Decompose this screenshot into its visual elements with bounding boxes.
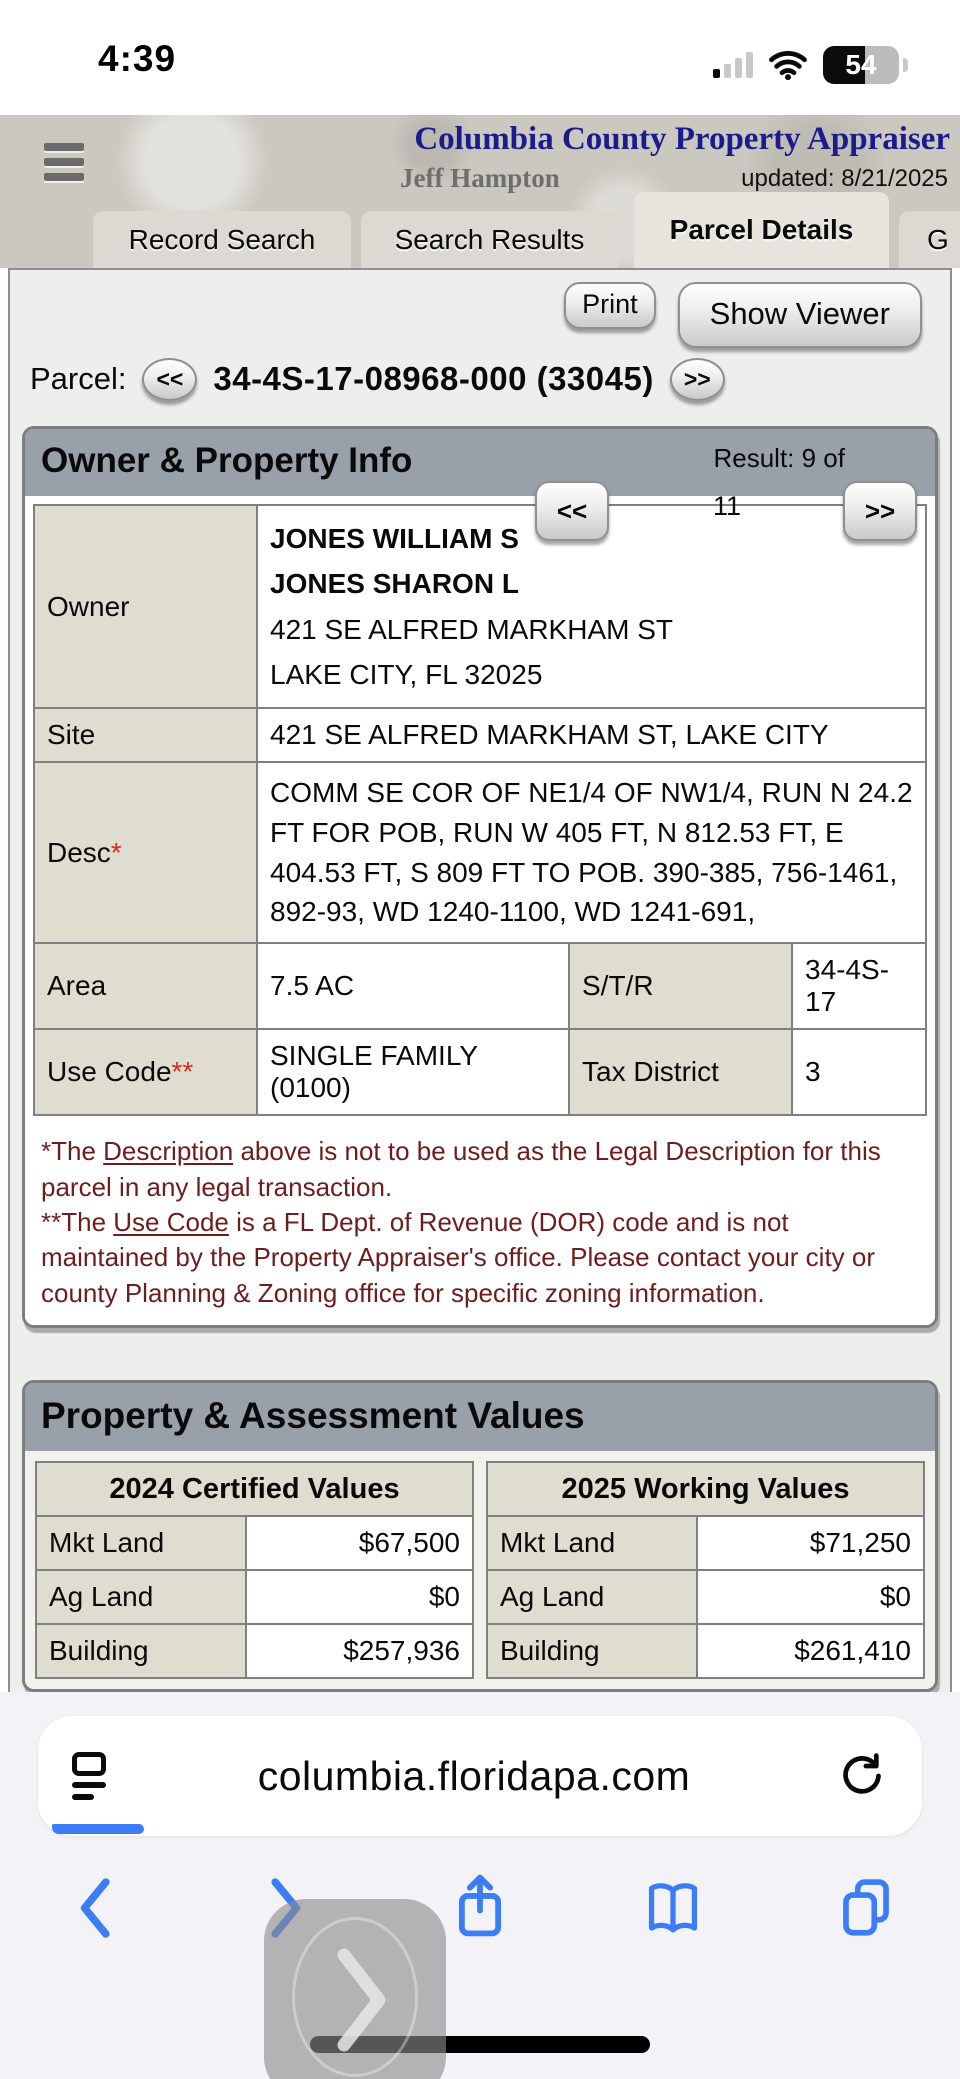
row-label: Ag Land [487, 1570, 697, 1624]
print-button[interactable]: Print [564, 282, 656, 329]
table-row: Site 421 SE ALFRED MARKHAM ST, LAKE CITY [34, 708, 926, 762]
desc-label: Desc* [34, 762, 257, 943]
table-row: 2025 Working Values [487, 1462, 924, 1516]
tab-search-results[interactable]: Search Results [361, 211, 618, 268]
battery-icon: 54 [823, 46, 899, 84]
parcel-label: Parcel: [30, 361, 126, 397]
wifi-icon [769, 50, 807, 80]
values-panel-title: Property & Assessment Values [41, 1393, 919, 1439]
prev-result-button[interactable]: << [535, 481, 609, 541]
assessment-values-panel: Property & Assessment Values 2024 Certif… [22, 1380, 938, 1692]
row-label: Mkt Land [36, 1516, 246, 1570]
result-count: 11 [713, 491, 741, 522]
owner-line: LAKE CITY, FL 32025 [270, 652, 913, 697]
row-value: $261,410 [697, 1624, 924, 1678]
parcel-nav: Parcel: << 34-4S-17-08968-000 (33045) >> [10, 348, 950, 410]
parcel-number: 34-4S-17-08968-000 (33045) [213, 360, 653, 398]
values-table-2025: 2025 Working Values Mkt Land $71,250 Ag … [486, 1461, 925, 1679]
battery-nub [903, 58, 908, 72]
iphone-screen: 4:39 54 Columbia County Property Apprais… [0, 0, 960, 2079]
owner-line: JONES SHARON L [270, 561, 913, 606]
site-header: Columbia County Property Appraiser Jeff … [0, 115, 960, 268]
page-settings-icon[interactable] [72, 1752, 112, 1800]
share-button[interactable] [444, 1868, 516, 1948]
show-viewer-button[interactable]: Show Viewer [678, 282, 922, 348]
legal-footnotes: *The Description above is not to be used… [25, 1124, 935, 1325]
desc-asterisk: * [111, 837, 122, 868]
next-result-button[interactable]: >> [843, 481, 917, 541]
row-value: $0 [246, 1570, 473, 1624]
row-label: Building [487, 1624, 697, 1678]
description-underline: Description [103, 1136, 233, 1166]
battery-percent: 54 [845, 49, 876, 81]
values-panel-header: Property & Assessment Values [25, 1383, 935, 1451]
appraiser-name: Jeff Hampton [400, 163, 560, 194]
owner-info-table: Owner JONES WILLIAM S JONES SHARON L 421… [33, 504, 927, 1116]
desc-value: COMM SE COR OF NE1/4 OF NW1/4, RUN N 24.… [257, 762, 926, 943]
table-row: Area 7.5 AC S/T/R 34-4S-17 [34, 943, 926, 1029]
owner-panel-title: Owner & Property Info [41, 439, 481, 484]
usecode-value: SINGLE FAMILY (0100) [257, 1029, 569, 1115]
usecode-asterisks: ** [172, 1056, 194, 1087]
table-row: Owner JONES WILLIAM S JONES SHARON L 421… [34, 505, 926, 708]
tab-parcel-details[interactable]: Parcel Details [634, 192, 889, 268]
table-row: Building $261,410 [487, 1624, 924, 1678]
table-row: Building $257,936 [36, 1624, 473, 1678]
owner-property-panel: Owner & Property Info Result: 9 of << 11… [22, 426, 938, 1328]
result-label: Result: 9 of [713, 443, 845, 474]
site-title: Columbia County Property Appraiser [414, 121, 950, 158]
tab-gis-cutoff[interactable]: G [899, 211, 960, 268]
assistive-touch-overlay[interactable] [264, 1899, 446, 2079]
str-value: 34-4S-17 [792, 943, 926, 1029]
prev-parcel-button[interactable]: << [142, 358, 197, 401]
values-table-2024: 2024 Certified Values Mkt Land $67,500 A… [35, 1461, 474, 1679]
taxdistrict-label: Tax District [569, 1029, 792, 1115]
values-2025-header: 2025 Working Values [487, 1462, 924, 1516]
safari-toolbar [0, 1868, 960, 1948]
table-row: Ag Land $0 [487, 1570, 924, 1624]
page-content: Print Show Viewer Parcel: << 34-4S-17-08… [8, 268, 952, 1692]
str-label: S/T/R [569, 943, 792, 1029]
owner-label: Owner [34, 505, 257, 708]
reload-icon[interactable] [836, 1750, 888, 1802]
cellular-signal-icon [713, 52, 753, 78]
site-label: Site [34, 708, 257, 762]
owner-line: 421 SE ALFRED MARKHAM ST [270, 607, 913, 652]
table-row: 2024 Certified Values [36, 1462, 473, 1516]
url-bar[interactable]: columbia.floridapa.com [38, 1716, 922, 1836]
assistive-chevron-icon [314, 1925, 404, 2075]
row-label: Building [36, 1624, 246, 1678]
next-parcel-button[interactable]: >> [670, 358, 725, 401]
clock: 4:39 [98, 38, 176, 80]
page-load-progress-bar [52, 1824, 144, 1834]
safari-bottom-chrome: columbia.floridapa.com [0, 1692, 960, 2079]
table-row: Ag Land $0 [36, 1570, 473, 1624]
owner-panel-header: Owner & Property Info Result: 9 of << 11… [25, 429, 935, 496]
updated-date: updated: 8/21/2025 [741, 165, 948, 193]
url-text[interactable]: columbia.floridapa.com [112, 1753, 836, 1800]
status-bar: 4:39 54 [0, 0, 960, 115]
row-label: Ag Land [36, 1570, 246, 1624]
row-value: $67,500 [246, 1516, 473, 1570]
site-value: 421 SE ALFRED MARKHAM ST, LAKE CITY [257, 708, 926, 762]
row-value: $0 [697, 1570, 924, 1624]
tab-record-search[interactable]: Record Search [93, 211, 351, 268]
table-row: Mkt Land $67,500 [36, 1516, 473, 1570]
values-2024-header: 2024 Certified Values [36, 1462, 473, 1516]
row-label: Mkt Land [487, 1516, 697, 1570]
bookmarks-button[interactable] [637, 1868, 709, 1948]
row-value: $71,250 [697, 1516, 924, 1570]
taxdistrict-value: 3 [792, 1029, 926, 1115]
area-label: Area [34, 943, 257, 1029]
usecode-label: Use Code** [34, 1029, 257, 1115]
tabs-button[interactable] [830, 1868, 902, 1948]
usecode-underline: Use Code [113, 1207, 229, 1237]
table-row: Use Code** SINGLE FAMILY (0100) Tax Dist… [34, 1029, 926, 1115]
table-row: Mkt Land $71,250 [487, 1516, 924, 1570]
row-value: $257,936 [246, 1624, 473, 1678]
back-button[interactable] [58, 1868, 130, 1948]
area-value: 7.5 AC [257, 943, 569, 1029]
table-row: Desc* COMM SE COR OF NE1/4 OF NW1/4, RUN… [34, 762, 926, 943]
